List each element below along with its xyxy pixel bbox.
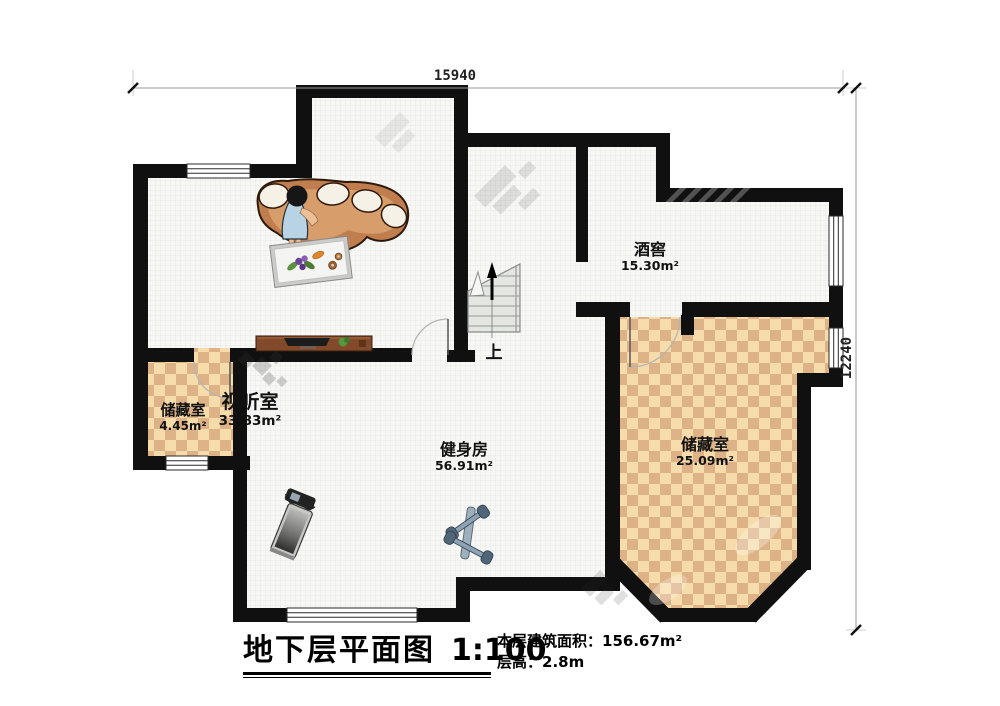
- title-block: 地下层平面图1:100: [243, 625, 493, 678]
- window-av-top: [187, 164, 250, 178]
- room-gym-floor-sliver: [588, 317, 605, 362]
- floor-area-value: 156.67m²: [602, 632, 682, 650]
- room-av-area: 33.83m²: [219, 413, 282, 429]
- room-av-name: 视听室: [221, 390, 278, 413]
- title-underline: [243, 672, 491, 675]
- dimension-right-value: 12240: [839, 337, 855, 379]
- room-storage-large-name: 储藏室: [680, 435, 729, 454]
- room-storage-large-area: 25.09m²: [676, 453, 734, 468]
- storage-small-door-gap: [194, 348, 230, 362]
- dimension-top: 15940: [128, 68, 848, 96]
- room-wine-name: 酒窖: [634, 240, 666, 259]
- floorplan-page: 15940 12240 视听室 33.83m² 酒窖 15.30m² 储藏室 4…: [0, 0, 1000, 706]
- window-wine-right: [829, 216, 843, 286]
- dimension-right: 12240: [839, 83, 866, 635]
- window-storage-small-bottom: [166, 456, 208, 470]
- plan-title: 地下层平面图: [243, 633, 435, 668]
- floor-area-label: 本层建筑面积：: [497, 632, 602, 650]
- wine-door-gap-floor: [630, 302, 682, 317]
- room-gym-floor: [247, 362, 605, 608]
- room-gym-area: 56.91m²: [435, 458, 493, 473]
- window-gym-bottom: [287, 608, 417, 622]
- room-wine-area: 15.30m²: [621, 258, 679, 273]
- room-storage-small-area: 4.45m²: [159, 419, 206, 433]
- stairs-up-label: 上: [486, 343, 503, 363]
- dimension-top-value: 15940: [434, 68, 476, 84]
- coffee-table: [270, 236, 353, 287]
- title-underline-thin: [243, 677, 491, 678]
- tv-cabinet: [256, 336, 372, 351]
- room-wine-floor-main: [656, 202, 829, 302]
- floorplan-drawing: 15940 12240 视听室 33.83m² 酒窖 15.30m² 储藏室 4…: [0, 0, 1000, 706]
- room-storage-small-name: 储藏室: [160, 401, 205, 419]
- room-wine-floor-left: [588, 147, 656, 302]
- floor-height-label: 层高：: [497, 653, 542, 671]
- plan-info-block: 本层建筑面积：156.67m² 层高：2.8m: [497, 631, 682, 673]
- floor-height-value: 2.8m: [542, 653, 584, 671]
- room-gym-name: 健身房: [440, 440, 488, 459]
